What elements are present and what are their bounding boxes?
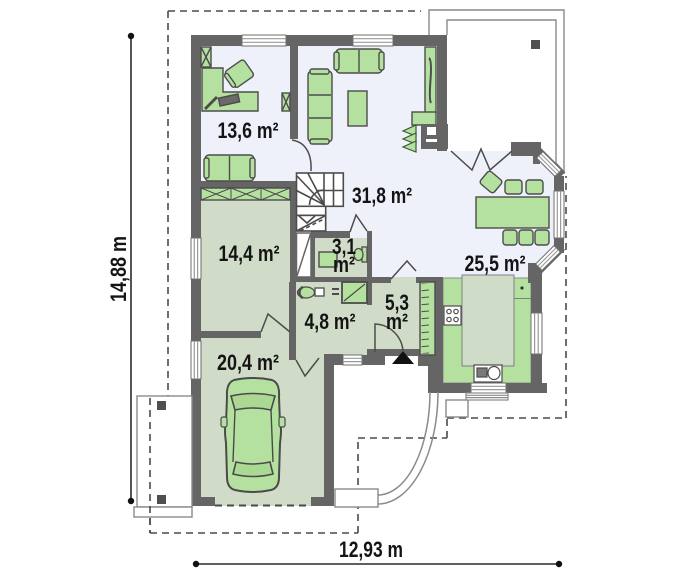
svg-text:20,4 m²: 20,4 m² [217,350,279,375]
svg-text:12,93 m: 12,93 m [339,537,403,562]
svg-text:25,5 m²: 25,5 m² [465,251,526,276]
svg-text:m²: m² [386,309,408,334]
svg-text:4,8 m²: 4,8 m² [305,309,356,334]
svg-text:14,4 m²: 14,4 m² [219,241,280,266]
svg-text:31,8 m²: 31,8 m² [352,183,412,208]
svg-text:m²: m² [333,252,355,277]
svg-text:13,6 m²: 13,6 m² [218,118,279,143]
svg-text:14,88 m: 14,88 m [106,236,131,302]
